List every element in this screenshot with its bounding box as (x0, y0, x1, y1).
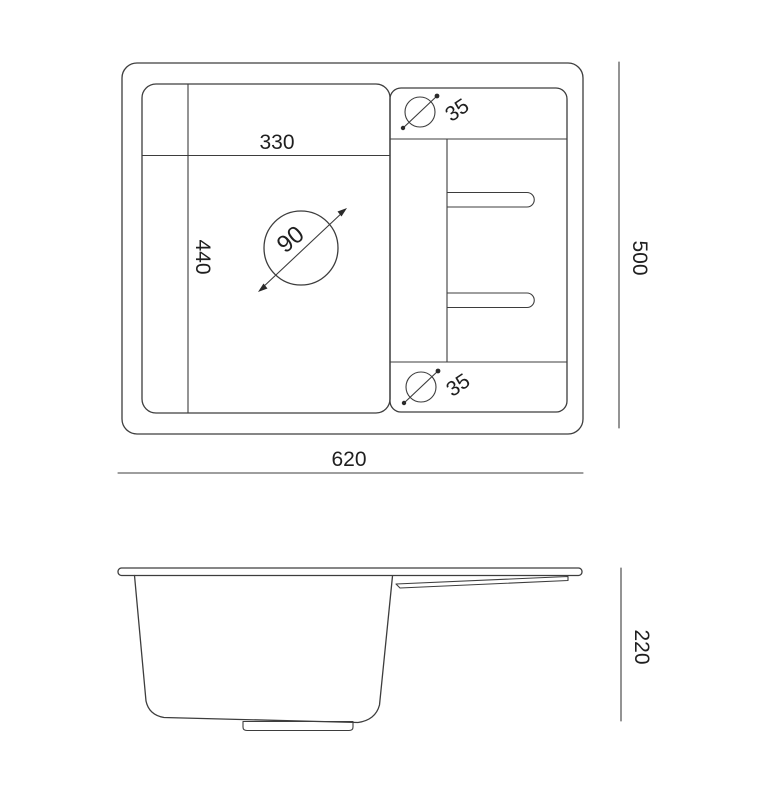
side-view (118, 568, 582, 731)
bowl-width-label: 330 (259, 131, 294, 154)
technical-drawing-svg: 330 440 90 35 35 620 500 220 (0, 0, 770, 800)
drainboard-outline (390, 88, 567, 412)
drainboard-groove-bottom (447, 293, 534, 308)
sink-technical-drawing: 330 440 90 35 35 620 500 220 (0, 0, 770, 800)
drainboard-groove-top (447, 193, 534, 208)
tap-hole-top-label: 35 (441, 94, 473, 126)
diameter-slash-icon (402, 95, 438, 129)
overall-height-label: 220 (630, 629, 653, 664)
dot-icon (436, 369, 441, 374)
dimension-height: 220 (621, 568, 653, 721)
top-view-labels: 330 440 90 35 35 (191, 94, 474, 401)
drain-diameter-label: 90 (272, 221, 310, 259)
rim-profile (118, 568, 582, 576)
drain-hole (258, 208, 347, 292)
dot-icon (401, 126, 405, 130)
overall-width-label: 620 (331, 448, 366, 471)
dimension-width: 620 (118, 448, 583, 473)
bowl-profile (135, 576, 393, 723)
diameter-slash-icon (403, 370, 439, 404)
dimension-depth: 500 (619, 62, 651, 428)
overall-dimensions: 620 500 220 (118, 62, 653, 721)
drain-foot (243, 722, 353, 731)
overall-depth-label: 500 (628, 240, 651, 275)
tap-hole-bottom-label: 35 (442, 369, 474, 401)
tap-hole-bottom (402, 369, 441, 406)
tap-hole-top (401, 94, 440, 131)
drainboard-profile (396, 577, 568, 589)
dot-icon (402, 401, 406, 405)
dot-icon (435, 94, 440, 99)
bowl-length-label: 440 (191, 239, 214, 274)
